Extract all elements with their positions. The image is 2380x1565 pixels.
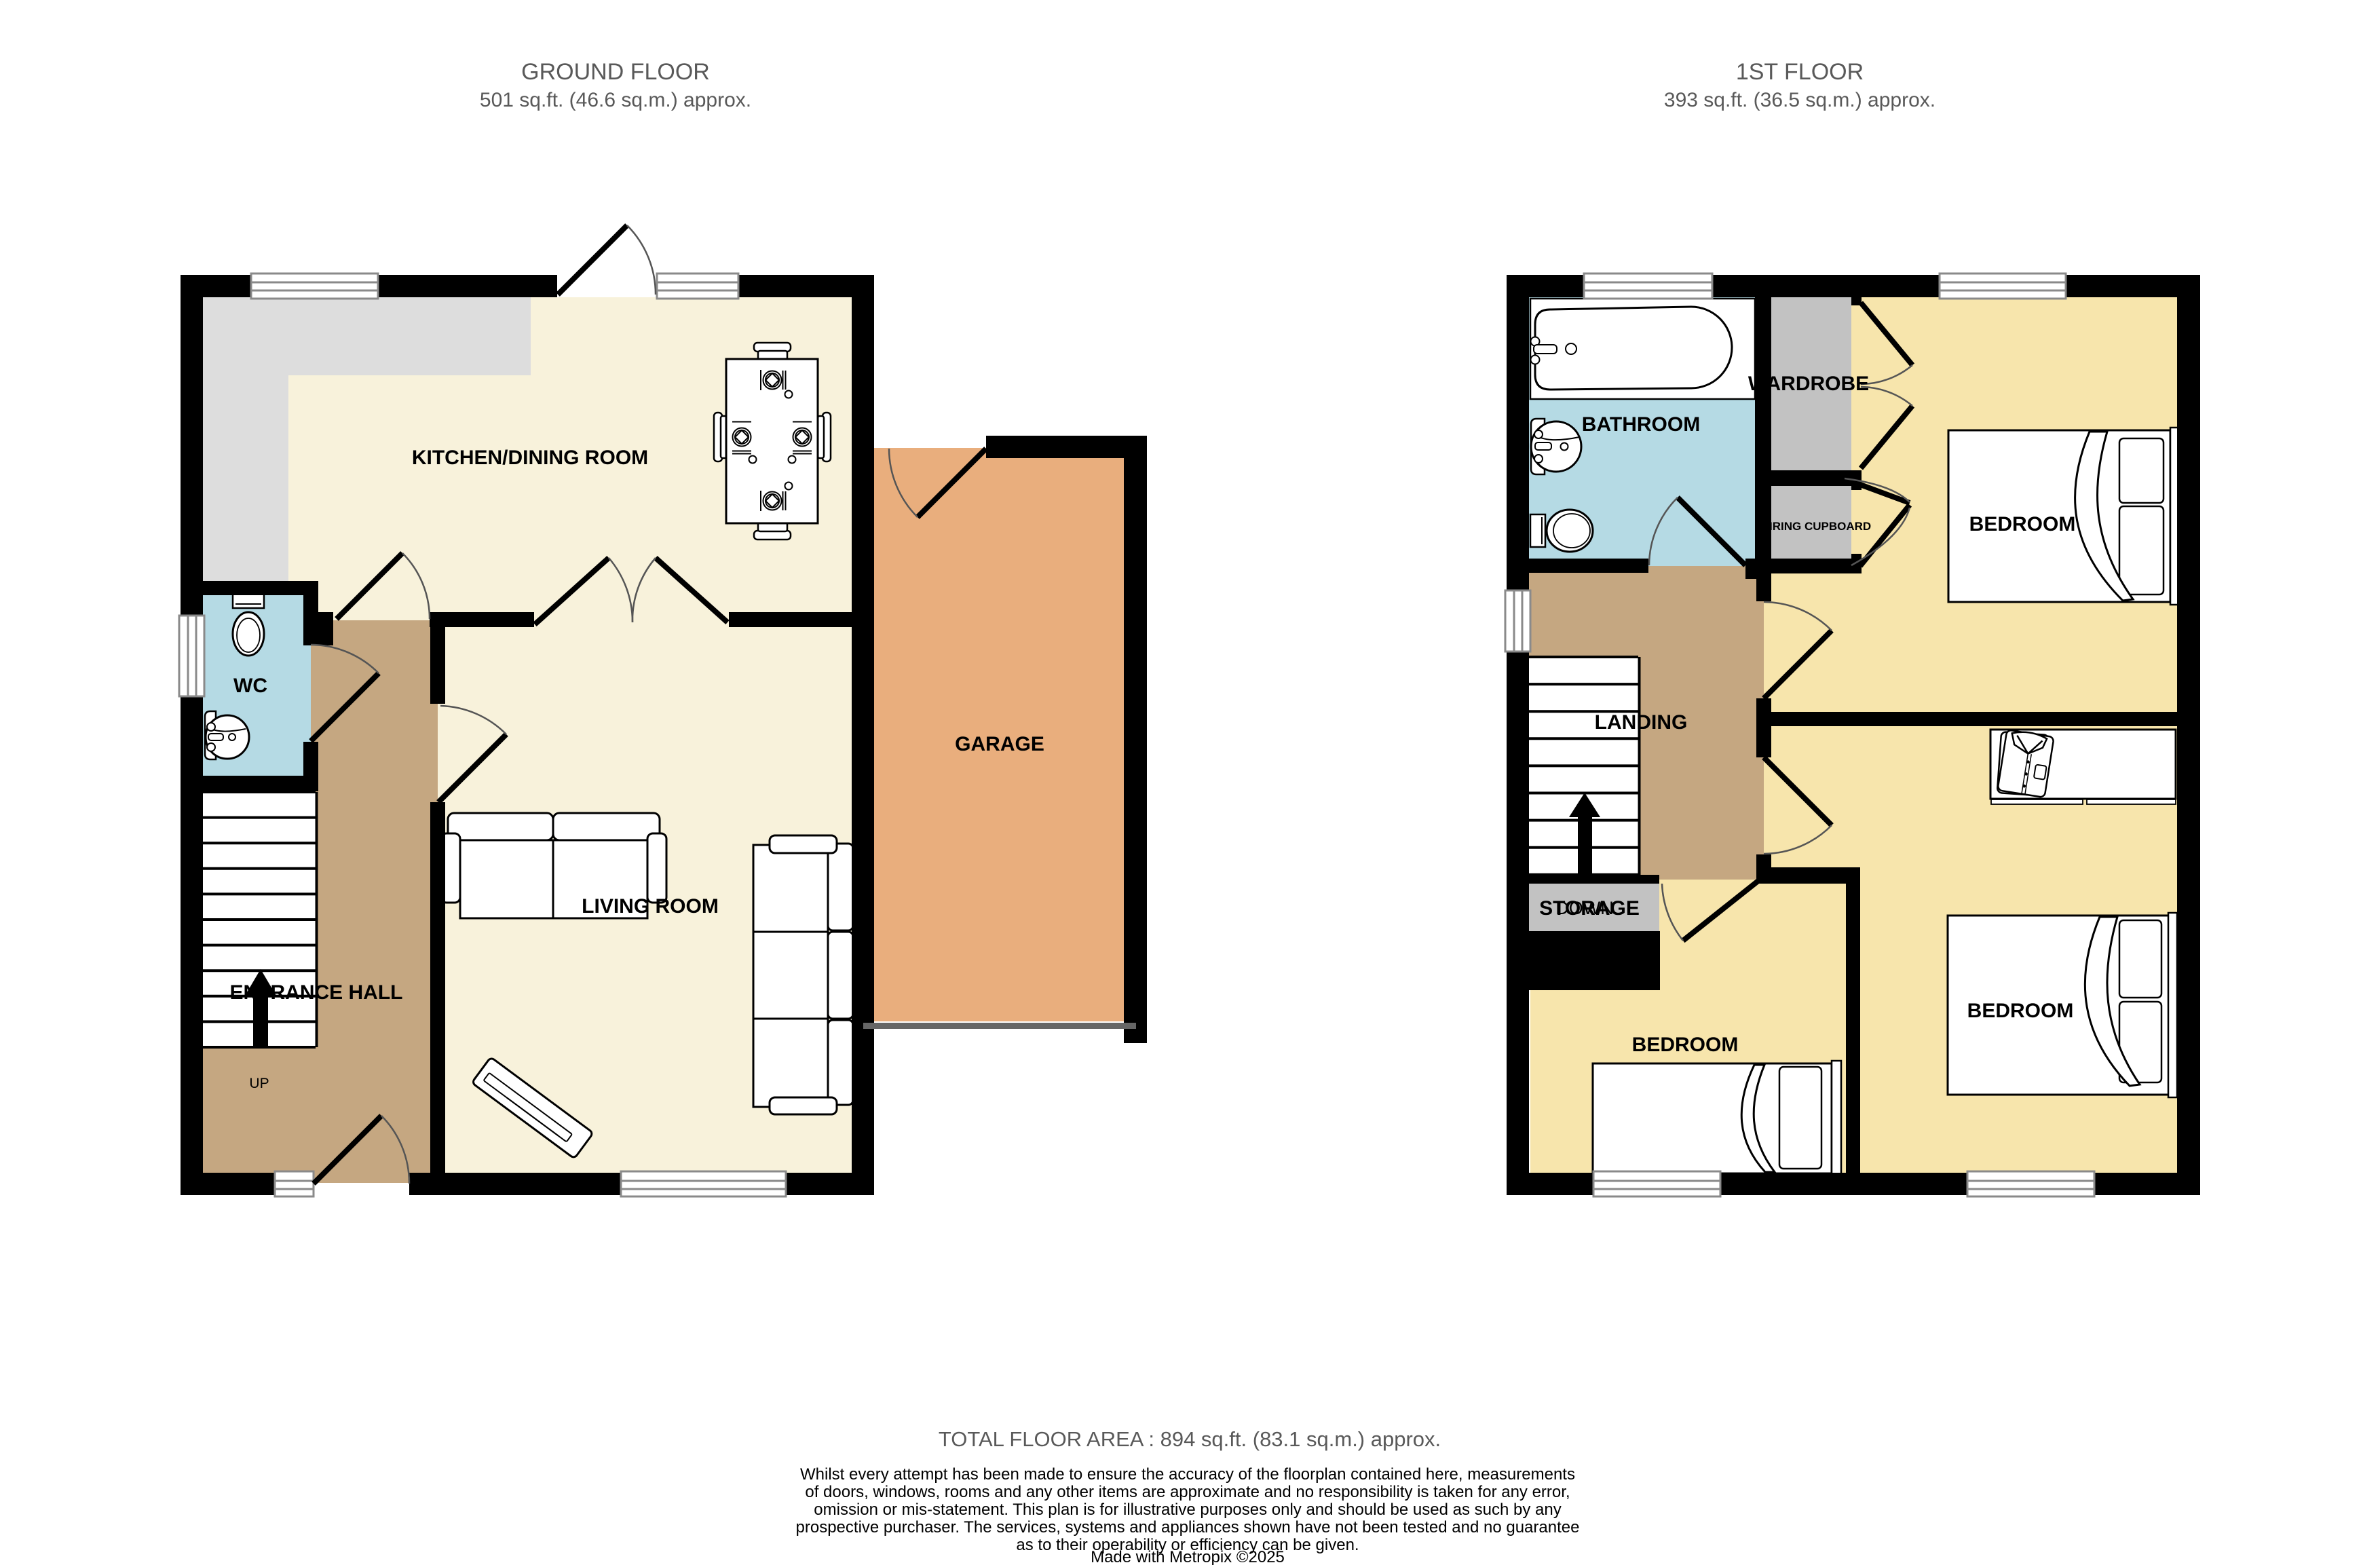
svg-text:of doors, windows, rooms and a: of doors, windows, rooms and any other i…	[805, 1483, 1570, 1501]
svg-text:KITCHEN/DINING ROOM: KITCHEN/DINING ROOM	[412, 447, 648, 469]
svg-text:UP: UP	[249, 1076, 269, 1091]
svg-text:BEDROOM: BEDROOM	[1969, 513, 2076, 535]
svg-text:BATHROOM: BATHROOM	[1582, 413, 1700, 436]
svg-text:GROUND FLOOR: GROUND FLOOR	[521, 59, 710, 85]
svg-text:BEDROOM: BEDROOM	[1632, 1034, 1739, 1056]
svg-text:Made with Metropix ©2025: Made with Metropix ©2025	[1091, 1548, 1285, 1565]
svg-text:ENTRANCE HALL: ENTRANCE HALL	[230, 981, 403, 1004]
svg-text:LIVING ROOM: LIVING ROOM	[582, 895, 719, 918]
svg-text:GARAGE: GARAGE	[955, 733, 1044, 755]
svg-text:AIRING CUPBOARD: AIRING CUPBOARD	[1761, 520, 1871, 533]
svg-text:WARDROBE: WARDROBE	[1748, 373, 1869, 395]
svg-text:TOTAL FLOOR AREA : 894 sq.ft.: TOTAL FLOOR AREA : 894 sq.ft. (83.1 sq.m…	[939, 1427, 1441, 1451]
svg-text:393 sq.ft. (36.5 sq.m.) approx: 393 sq.ft. (36.5 sq.m.) approx.	[1664, 89, 1935, 111]
svg-text:1ST FLOOR: 1ST FLOOR	[1736, 59, 1864, 85]
svg-text:DOWN: DOWN	[1555, 898, 1613, 918]
svg-text:BEDROOM: BEDROOM	[1967, 1000, 2074, 1022]
svg-text:WC: WC	[233, 675, 267, 697]
svg-text:501 sq.ft. (46.6 sq.m.) approx: 501 sq.ft. (46.6 sq.m.) approx.	[480, 89, 751, 111]
svg-text:prospective purchaser. The ser: prospective purchaser. The services, sys…	[796, 1518, 1580, 1536]
svg-text:Whilst every attempt has been: Whilst every attempt has been made to en…	[800, 1465, 1575, 1484]
svg-text:LANDING: LANDING	[1595, 711, 1688, 734]
svg-text:omission or mis-statement. Thi: omission or mis-statement. This plan is …	[814, 1501, 1561, 1519]
